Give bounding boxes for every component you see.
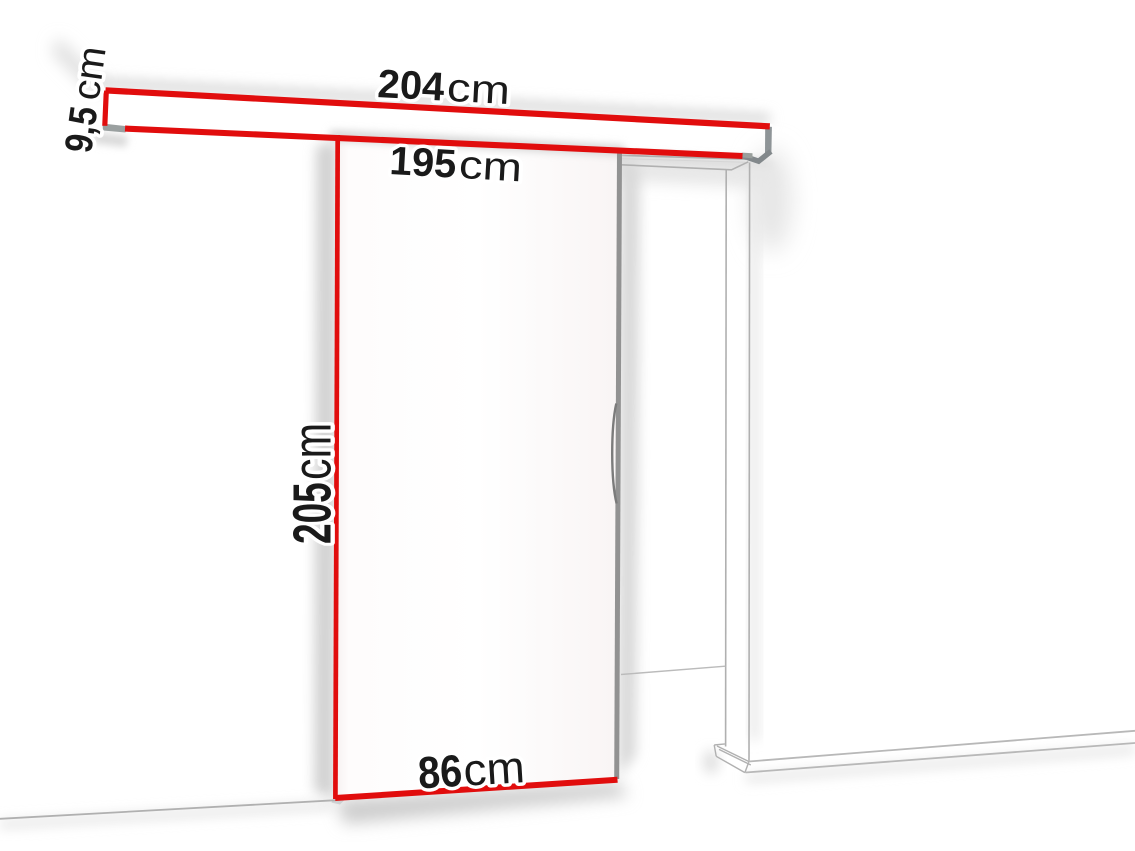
svg-text:9,5: 9,5: [56, 104, 106, 156]
svg-text:195: 195: [388, 139, 457, 187]
svg-text:cm: cm: [64, 44, 114, 103]
svg-text:cm: cm: [462, 741, 526, 795]
svg-text:cm: cm: [458, 142, 523, 190]
svg-text:86: 86: [417, 746, 464, 798]
svg-text:204: 204: [377, 62, 447, 110]
svg-text:cm: cm: [283, 423, 343, 480]
svg-text:205: 205: [282, 482, 343, 544]
svg-text:cm: cm: [446, 65, 511, 113]
